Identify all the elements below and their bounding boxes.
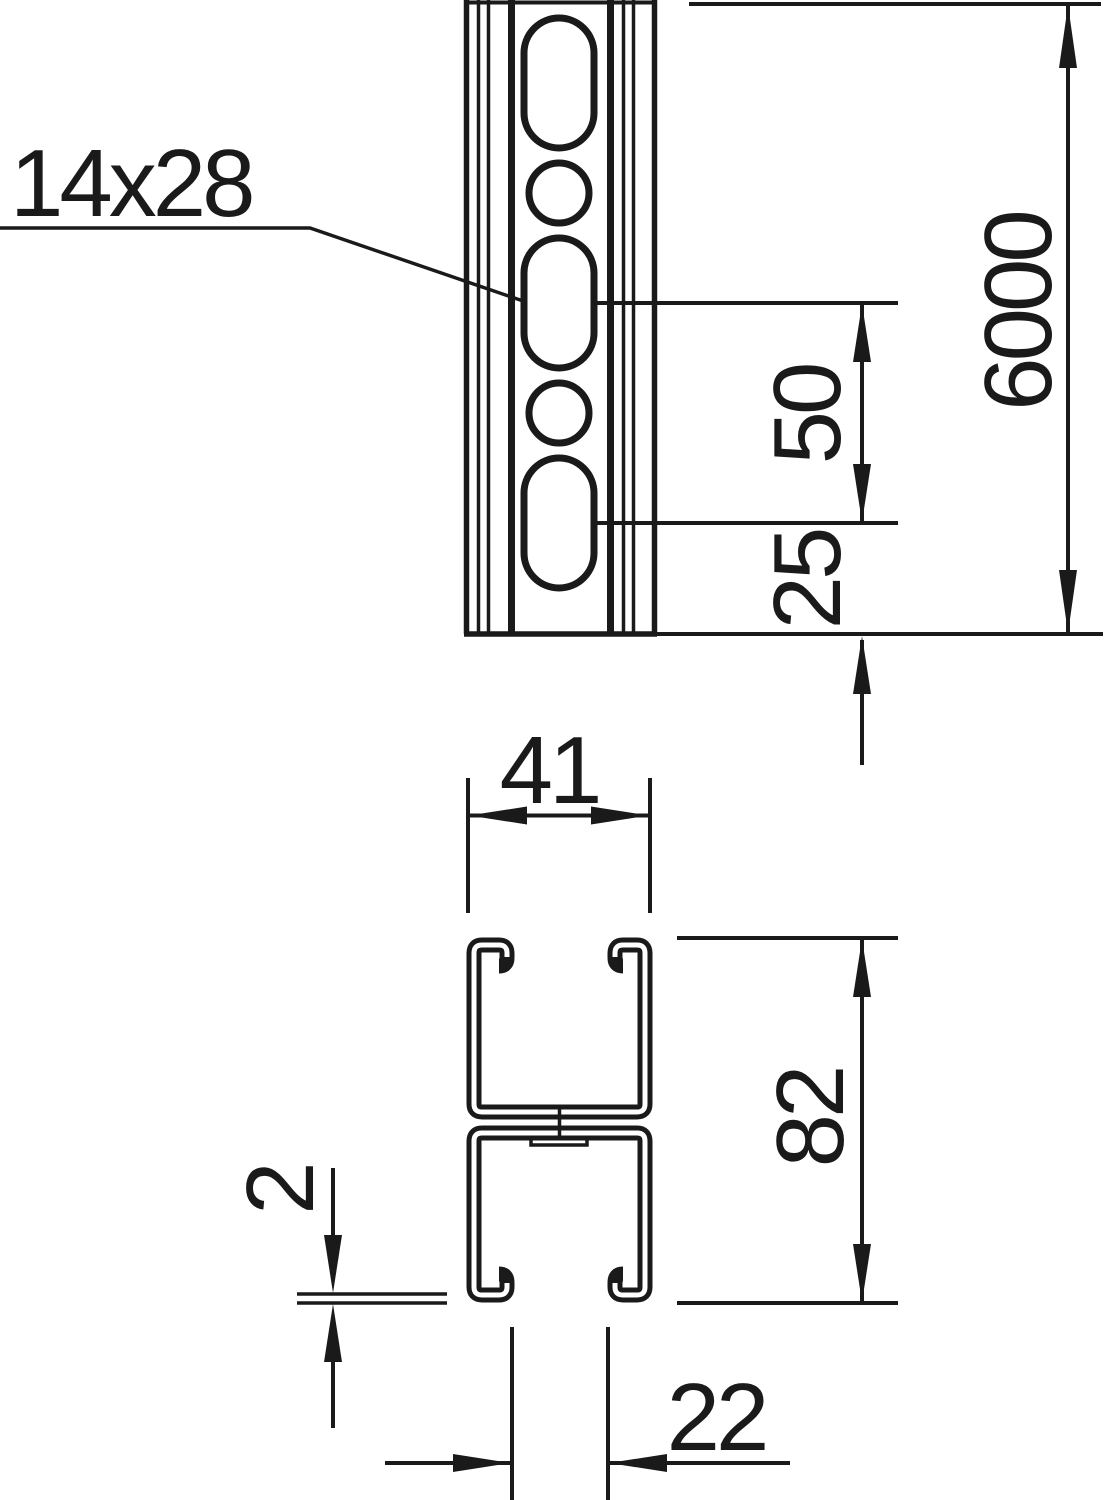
dim-label-pitch: 50 — [754, 365, 861, 464]
arrowhead-down — [853, 464, 871, 522]
upper-channel-sheet — [474, 945, 645, 1112]
dim-width-41: 41 — [468, 717, 650, 913]
arrowhead-left-outside — [609, 1454, 667, 1472]
dim-label-slot-size: 14x28 — [10, 130, 252, 237]
rail-slot-hole-2 — [524, 238, 594, 368]
arrowhead-right — [591, 807, 649, 825]
leader-line — [0, 228, 526, 302]
drawing-page: 14x28 6000 50 25 — [0, 0, 1104, 1500]
leader-slot-size: 14x28 — [0, 130, 526, 302]
arrowhead-up-outside — [324, 1304, 342, 1362]
arrowhead-down — [853, 1244, 871, 1302]
dim-pitch-50: 50 — [594, 303, 898, 523]
rail-holes — [524, 18, 594, 588]
arrowhead-up — [853, 304, 871, 362]
dim-label-length: 6000 — [965, 213, 1072, 411]
arrowhead-up-outside — [853, 636, 871, 694]
upper-channel — [474, 945, 645, 1112]
dim-thickness-2: 2 — [227, 1165, 447, 1428]
dim-label-width: 41 — [500, 717, 599, 824]
arrowhead-up — [853, 939, 871, 997]
dim-height-82: 82 — [677, 938, 898, 1303]
dim-label-end: 25 — [754, 530, 861, 629]
dim-label-height: 82 — [757, 1069, 864, 1168]
rail-slot-hole-3 — [524, 458, 594, 588]
dim-label-thickness: 2 — [227, 1165, 334, 1214]
dim-opening-22: 22 — [385, 1327, 790, 1500]
lower-channel — [474, 1133, 645, 1295]
dim-label-opening: 22 — [667, 1364, 766, 1471]
rail-slot-hole-1 — [524, 18, 594, 148]
dim-length-6000: 6000 — [657, 4, 1103, 634]
lower-channel-sheet — [474, 1133, 645, 1295]
arrowhead-down-outside — [324, 1235, 342, 1293]
technical-drawing-canvas: 14x28 6000 50 25 — [0, 0, 1104, 1500]
arrowhead-up — [1059, 5, 1077, 68]
arrowhead-right-outside — [453, 1454, 511, 1472]
section-view-channel: 41 82 — [227, 717, 898, 1500]
front-view-rail: 14x28 6000 50 25 — [0, 0, 1103, 765]
rail-round-hole-2 — [529, 383, 589, 443]
rail-round-hole-1 — [529, 163, 589, 223]
arrowhead-down — [1059, 570, 1077, 633]
dim-end-25: 25 — [754, 530, 871, 765]
